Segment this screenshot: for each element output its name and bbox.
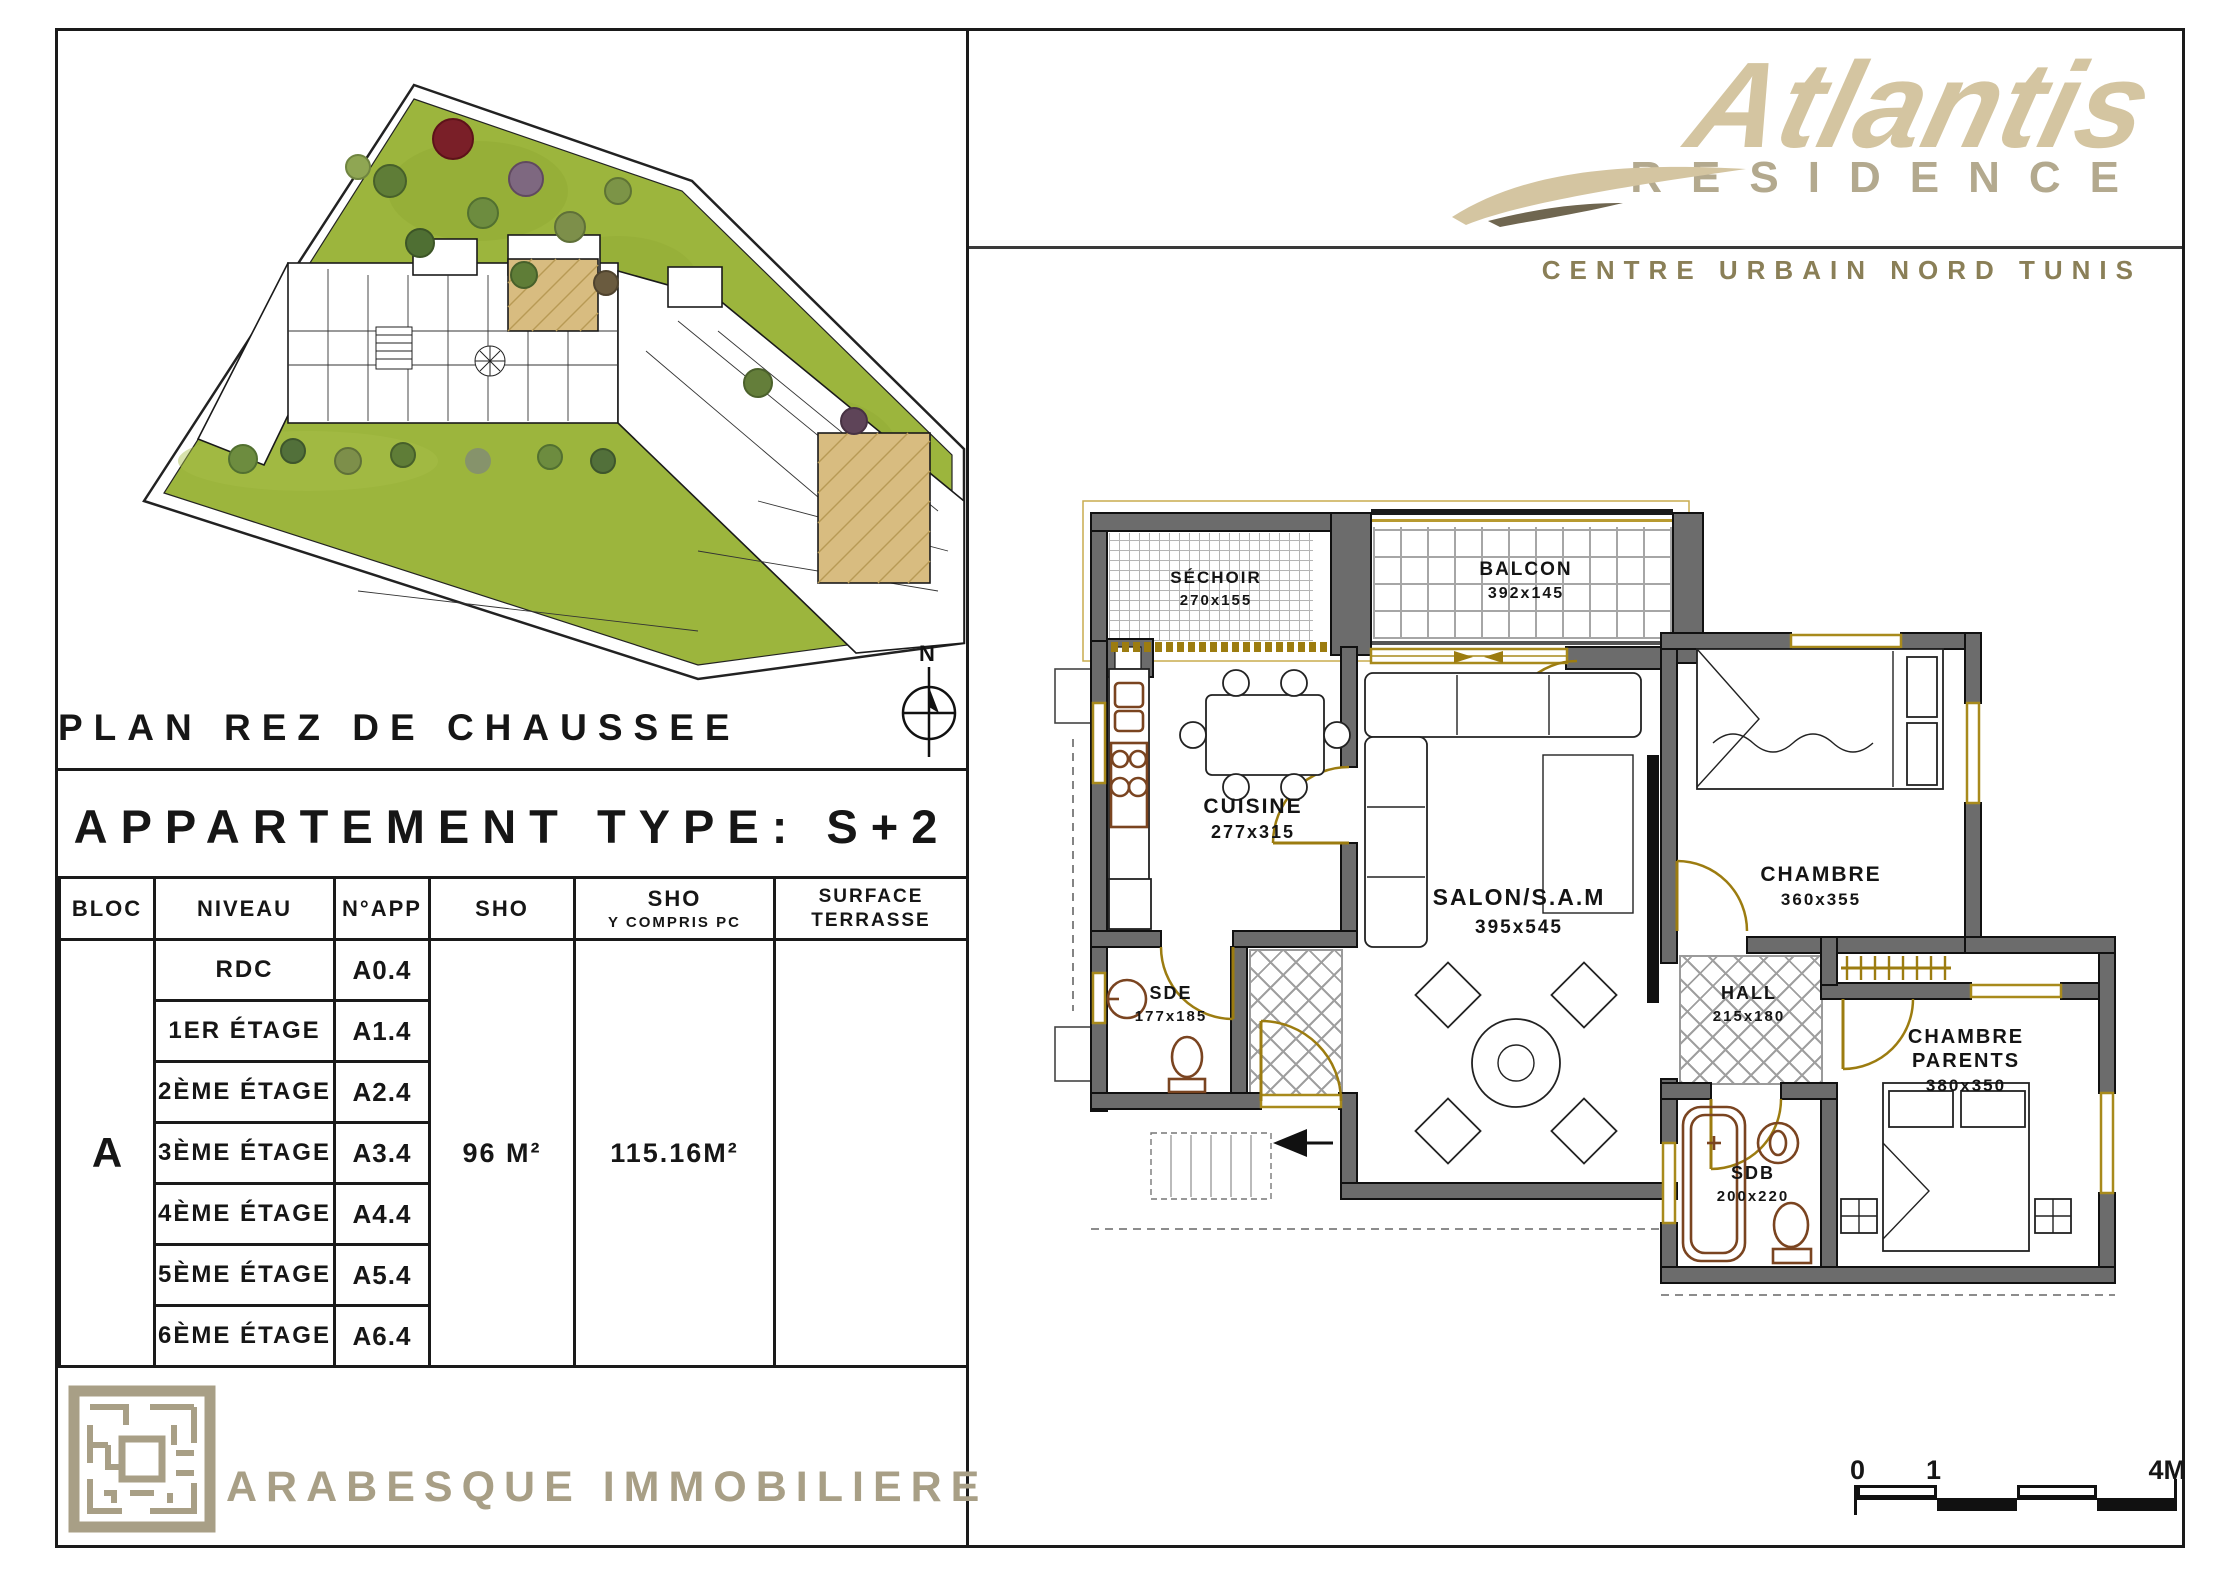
chambre-furniture bbox=[1697, 649, 1943, 789]
brand-block: Atlantis RESIDENCE bbox=[1448, 41, 2148, 256]
sho-cell: 96 M² bbox=[430, 940, 575, 1367]
table-header-row: BLOC NIVEAU N°APP SHO SHOY COMPRIS PC SU… bbox=[60, 878, 968, 940]
col-header-bloc: BLOC bbox=[60, 878, 155, 940]
napp-cell: A1.4 bbox=[335, 1001, 430, 1062]
table-row: A RDC A0.4 96 M² 115.16M² bbox=[60, 940, 968, 1001]
scale-label-0: 0 bbox=[1850, 1455, 1865, 1486]
niveau-cell: RDC bbox=[155, 940, 335, 1001]
section-divider bbox=[58, 768, 966, 771]
room-dims-sechoir: 270x155 bbox=[1180, 592, 1252, 609]
room-label-chambre: CHAMBRE bbox=[1760, 863, 1881, 886]
parents-furniture bbox=[1841, 1083, 2071, 1251]
room-dims-cuisine: 277x315 bbox=[1211, 822, 1295, 842]
apartment-type-title: APPARTEMENT TYPE: S+2 bbox=[58, 799, 966, 854]
room-dims-chambre: 360x355 bbox=[1781, 890, 1861, 909]
floor-plan-drawing: SÉCHOIR 270x155 BALCON 392x145 CUISINE 2… bbox=[1021, 443, 2121, 1413]
room-label-sde: SDE bbox=[1149, 983, 1192, 1003]
niveau-cell: 2ÈME ÉTAGE bbox=[155, 1062, 335, 1123]
napp-cell: A0.4 bbox=[335, 940, 430, 1001]
scale-label-1: 1 bbox=[1926, 1455, 1941, 1486]
brand-name: Atlantis bbox=[1677, 41, 2164, 169]
room-label-balcon: BALCON bbox=[1479, 559, 1572, 580]
napp-cell: A5.4 bbox=[335, 1245, 430, 1306]
brand-rule bbox=[969, 246, 2182, 249]
room-dims-parents: 380x350 bbox=[1926, 1076, 2006, 1095]
niveau-cell: 6ÈME ÉTAGE bbox=[155, 1306, 335, 1367]
room-dims-hall: 215x180 bbox=[1713, 1008, 1785, 1025]
room-label-hall: HALL bbox=[1721, 983, 1777, 1003]
compass-n-label: N bbox=[919, 643, 935, 666]
niveau-cell: 3ÈME ÉTAGE bbox=[155, 1123, 335, 1184]
site-plan-title: PLAN REZ DE CHAUSSEE bbox=[58, 707, 738, 749]
left-panel: PLAN REZ DE CHAUSSEE N APPARTEMENT TYPE:… bbox=[58, 31, 966, 1545]
napp-cell: A4.4 bbox=[335, 1184, 430, 1245]
wardrobe-rail bbox=[1841, 956, 1951, 980]
sdb-fixtures bbox=[1683, 1107, 1811, 1263]
bloc-cell: A bbox=[60, 940, 155, 1367]
spec-table: BLOC NIVEAU N°APP SHO SHOY COMPRIS PC SU… bbox=[58, 876, 969, 1368]
niveau-cell: 4ÈME ÉTAGE bbox=[155, 1184, 335, 1245]
room-dims-sdb: 200x220 bbox=[1717, 1188, 1789, 1205]
scale-label-4m: 4M bbox=[2148, 1455, 2186, 1486]
napp-cell: A2.4 bbox=[335, 1062, 430, 1123]
room-label-salon: SALON/S.A.M bbox=[1433, 884, 1606, 910]
plan-sheet: PLAN REZ DE CHAUSSEE N APPARTEMENT TYPE:… bbox=[55, 28, 2185, 1548]
room-label-parents-2: PARENTS bbox=[1912, 1050, 2020, 1072]
room-dims-sde: 177x185 bbox=[1135, 1008, 1207, 1025]
scale-bar-segments bbox=[1854, 1485, 2177, 1515]
sho-compris-cell: 115.16M² bbox=[575, 940, 775, 1367]
col-header-surface-terrasse: SURFACETERRASSE bbox=[775, 878, 968, 940]
niveau-cell: 1ER ÉTAGE bbox=[155, 1001, 335, 1062]
room-label-cuisine: CUISINE bbox=[1203, 795, 1302, 818]
col-header-sho-compris: SHOY COMPRIS PC bbox=[575, 878, 775, 940]
floor-plan: SÉCHOIR 270x155 BALCON 392x145 CUISINE 2… bbox=[1021, 443, 2121, 1413]
room-dims-balcon: 392x145 bbox=[1488, 585, 1564, 602]
scale-bar: 0 1 4M bbox=[1854, 1455, 2176, 1525]
company-name: ARABESQUE IMMOBILIERE bbox=[226, 1463, 988, 1512]
col-header-sho: SHO bbox=[430, 878, 575, 940]
surface-terrasse-cell bbox=[775, 940, 968, 1367]
site-plan bbox=[58, 31, 966, 696]
entry-arrow-icon bbox=[1273, 1129, 1333, 1157]
right-panel: Atlantis RESIDENCE CENTRE URBAIN NORD TU… bbox=[969, 31, 2182, 1545]
room-label-parents-1: CHAMBRE bbox=[1908, 1026, 2024, 1048]
room-label-sechoir: SÉCHOIR bbox=[1170, 568, 1261, 587]
napp-cell: A3.4 bbox=[335, 1123, 430, 1184]
niveau-cell: 5ÈME ÉTAGE bbox=[155, 1245, 335, 1306]
brand-location: CENTRE URBAIN NORD TUNIS bbox=[1542, 255, 2142, 286]
room-label-sdb: SDB bbox=[1731, 1163, 1775, 1183]
company-logo-icon bbox=[66, 1383, 218, 1535]
north-compass-icon: N bbox=[893, 643, 965, 763]
col-header-napp: N°APP bbox=[335, 878, 430, 940]
napp-cell: A6.4 bbox=[335, 1306, 430, 1367]
room-dims-salon: 395x545 bbox=[1475, 917, 1563, 938]
col-header-niveau: NIVEAU bbox=[155, 878, 335, 940]
